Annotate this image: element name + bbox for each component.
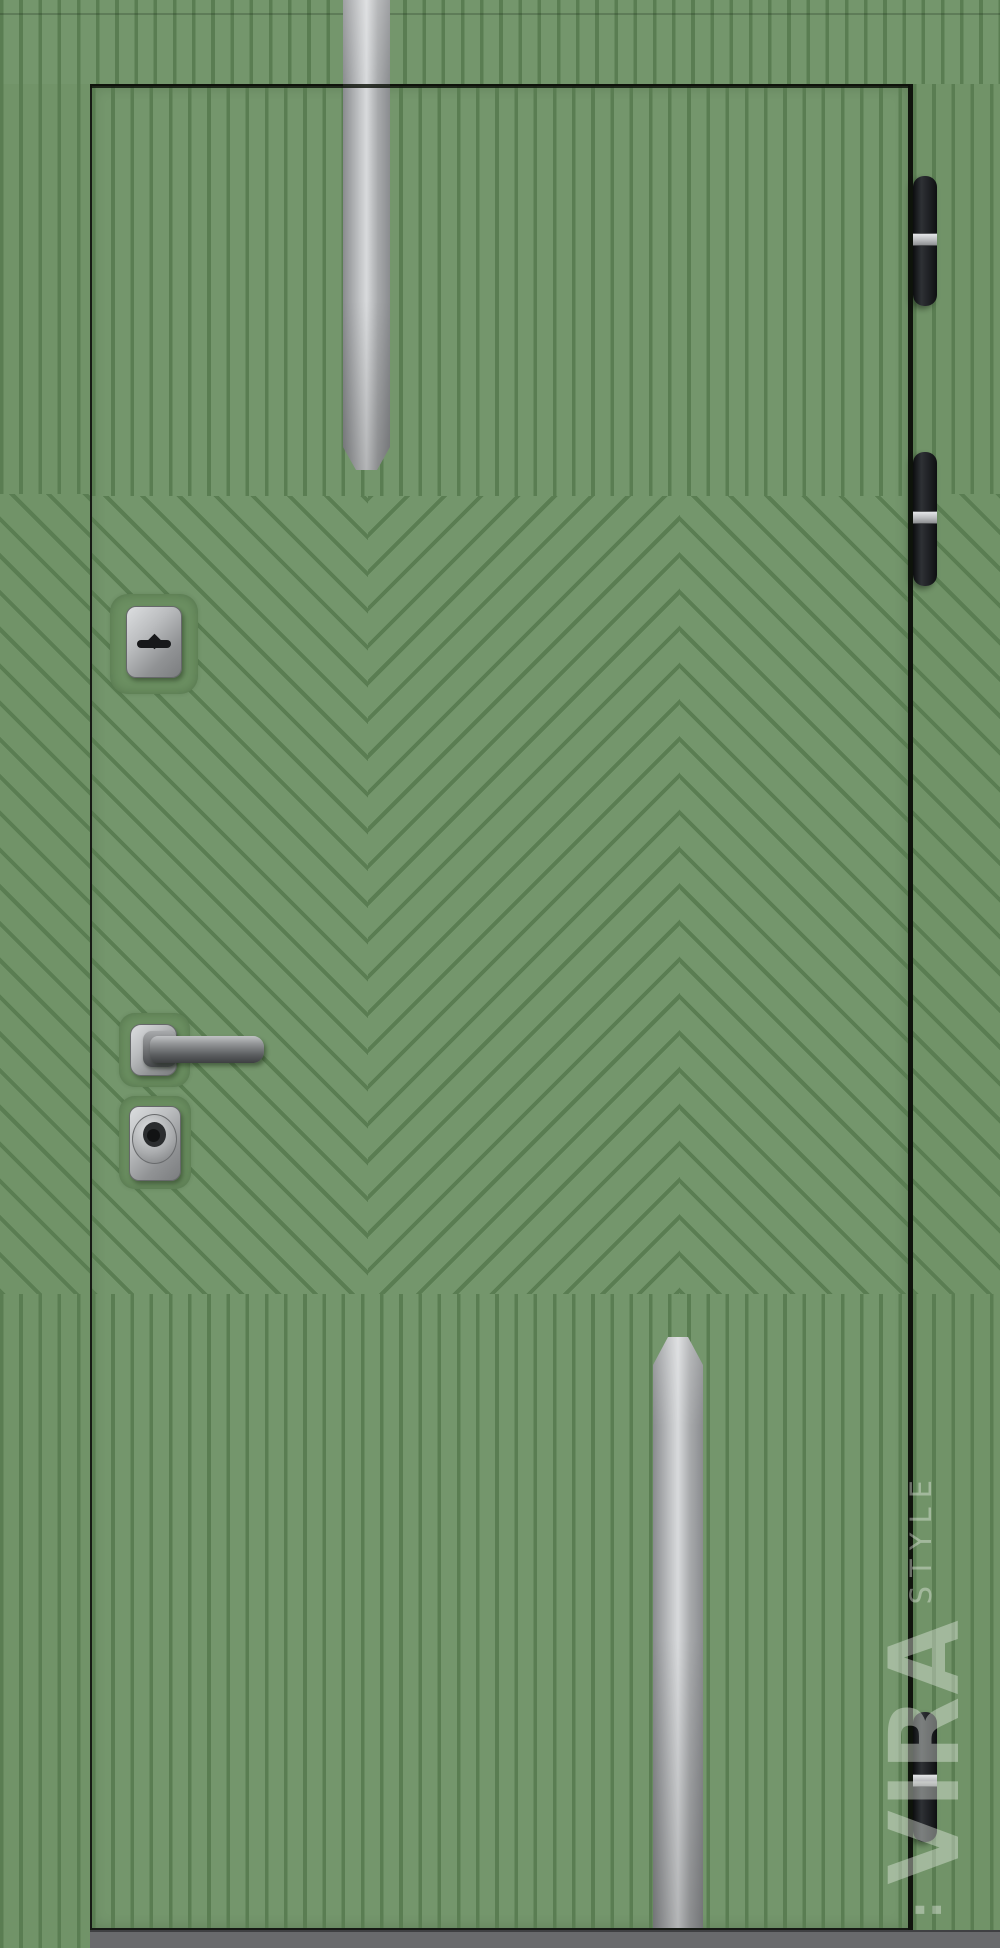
door-frame-right	[913, 84, 1000, 1948]
lever-handle	[150, 1036, 264, 1063]
frame-left-diagonal-grooves	[0, 494, 90, 1294]
leaf-chevron-middle-arm	[368, 496, 680, 1294]
door-product-photo: : VIRA STYLE	[0, 0, 1000, 1948]
leaf-frame-gap	[908, 84, 913, 1930]
hinge-middle	[913, 452, 937, 586]
leaf-vertical-grooves-top	[92, 86, 908, 496]
frame-left-vertical-grooves-top	[0, 84, 90, 494]
leaf-vertical-grooves-bottom	[92, 1294, 908, 1928]
hinge-middle-band	[913, 511, 937, 524]
frame-right-diagonal-grooves	[913, 494, 1000, 1294]
cylinder-core	[147, 1129, 160, 1142]
threshold-strip	[90, 1930, 1000, 1948]
frame-left-vertical-grooves-bottom	[0, 1294, 90, 1948]
frame-right-vertical-grooves-bottom	[913, 1294, 1000, 1948]
hinge-top-band	[913, 233, 937, 246]
hinge-bottom-band	[913, 1774, 937, 1787]
hinge-top	[913, 176, 937, 306]
leaf-top-edge-line	[90, 84, 910, 88]
door-frame-left	[0, 84, 90, 1948]
steel-inlay-bottom	[653, 1337, 703, 1928]
steel-inlay-top	[343, 0, 390, 470]
hinge-bottom	[913, 1712, 937, 1842]
transom-seam-line	[0, 13, 1000, 15]
leaf-chevron-right-arm	[680, 496, 908, 1294]
door-leaf	[90, 84, 910, 1930]
